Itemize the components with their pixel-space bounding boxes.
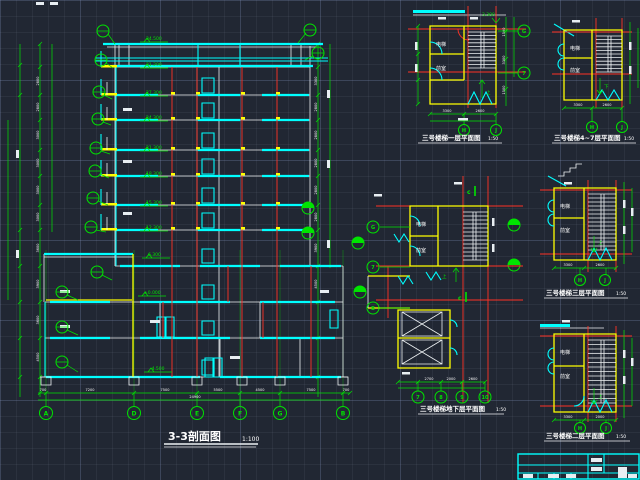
axis-bubble-label: 9 [460, 395, 464, 401]
plan-basement: 电梯 前室 上 c c G 7 B 2700 2000 2600 7 8 9 1… [367, 176, 523, 414]
plan-upper-floors: 下 电梯 前室 3300 2600 H J 三号楼梯4~7层平面图 1:50 [552, 18, 638, 143]
dim-label: 700 [343, 388, 350, 392]
plan-scale: 1:50 [616, 291, 626, 297]
section-bottom-dims: 700 7200 7500 5500 4500 7500 700 24900 A… [38, 388, 352, 420]
section-scale-text: 1:100 [242, 436, 259, 443]
room-label: 电梯 [570, 45, 580, 52]
axis-bubble-label: J [494, 128, 497, 134]
axis-bubble-label: H [578, 278, 582, 284]
room-label: 电梯 [436, 41, 446, 48]
dim-label: 3300 [443, 109, 452, 113]
dim-label: 3300 [314, 77, 318, 86]
dim-label: 2000 [596, 415, 605, 419]
room-label: 前室 [560, 227, 570, 234]
dim-label: 3900 [36, 280, 40, 289]
room-label: 前室 [416, 247, 426, 254]
axis-bubble-label: G [278, 411, 283, 418]
section-title: 3-3剖面图 1:100 [164, 429, 259, 447]
plan-title: 三号楼梯一层平面图 [422, 133, 481, 142]
room-label: 前室 [570, 67, 580, 74]
level-label: 24.300 [146, 115, 162, 121]
plan-second-floor: 上 电梯 前室 3300 2000 H J 三号楼梯二层平面图 1:50 [540, 320, 634, 441]
dim-label: 2800 [314, 186, 318, 195]
axis-bubble-label: A [44, 411, 49, 418]
plan-scale: 1:50 [488, 136, 498, 142]
title-block [518, 454, 639, 479]
section-title-text: 3-3剖面图 [168, 429, 221, 443]
axis-bubble-label: E [195, 411, 199, 418]
dim-label: 7500 [307, 388, 316, 392]
stair-direction-label: 上 [442, 273, 447, 280]
level-label: 12.300 [146, 225, 162, 231]
dim-label: 3300 [502, 56, 506, 65]
section-mark-label: c [458, 295, 462, 302]
room-label: 电梯 [416, 221, 426, 228]
dim-label: 7200 [86, 388, 95, 392]
dim-label: 4500 [256, 388, 265, 392]
axis-bubble-label: 8 [439, 395, 443, 401]
axis-bubble-label: 7 [371, 265, 375, 271]
dim-label: 2800 [36, 77, 40, 86]
level-label: 6.300 [148, 252, 161, 258]
dim-label: 5500 [214, 388, 223, 392]
plan-third-floor: 上 电梯 前室 3300 2600 H J 三号楼梯三层平面图 1:50 [540, 164, 634, 298]
dim-label: 2800 [314, 213, 318, 222]
dim-total-label: 24900 [189, 395, 200, 399]
axis-bubble-label: B [371, 306, 375, 312]
room-label: 电梯 [560, 203, 570, 210]
dim-label: 3300 [564, 263, 573, 267]
dim-label: 7500 [161, 388, 170, 392]
dim-label: 2000 [447, 377, 456, 381]
detail-index-marker [56, 24, 324, 372]
plan-title: 三号楼梯二层平面图 [546, 431, 605, 440]
dim-label: 2700 [425, 377, 434, 381]
level-label: 18.300 [146, 171, 162, 177]
dim-label: 3300 [574, 103, 583, 107]
dim-label: 2800 [314, 159, 318, 168]
axis-bubble-label: J [604, 426, 607, 432]
axis-bubble-label: 7 [416, 395, 420, 401]
axis-bubble-label: D [132, 411, 137, 418]
dim-label: 1500 [502, 28, 506, 37]
section-mark-label: c [467, 189, 471, 196]
axis-bubbles: A D E F G B [40, 407, 350, 420]
axis-bubble-label: J [603, 278, 606, 284]
level-label: 21.300 [146, 145, 162, 151]
section-right-dim-chains: 3300 2800 2800 2800 2800 2800 3900 4500 [314, 42, 330, 397]
dim-label: 700 [40, 388, 47, 392]
axis-bubble-label: F [238, 411, 242, 418]
plan-scale: 1:50 [624, 136, 634, 142]
dim-label: 4500 [36, 353, 40, 362]
dim-label: 4500 [314, 280, 318, 289]
plan-title: 三号楼梯4~7层平面图 [554, 133, 621, 142]
room-label: 电梯 [560, 349, 570, 356]
axis-bubble-label: G [371, 225, 375, 231]
level-label: ±0.000 [144, 290, 161, 296]
axis-bubble-label: J [620, 125, 623, 131]
dim-label: 3300 [564, 415, 573, 419]
dim-label: 2600 [476, 109, 485, 113]
axis-bubble-label: H [590, 125, 594, 131]
dim-label: 3000 [36, 186, 40, 195]
plan-title: 三号楼梯三层平面图 [546, 288, 605, 297]
dim-label: 3600 [36, 316, 40, 325]
level-label: 27.300 [146, 90, 162, 96]
section-structure [40, 44, 348, 393]
dim-label: 3900 [314, 244, 318, 253]
axis-bubble-label: 7 [522, 71, 526, 77]
dim-label: 3000 [36, 213, 40, 222]
plan-first-floor: 上 3.300 电梯 前室 3300 2600 H J 1500 3300 15… [408, 6, 530, 143]
level-label: 15.300 [146, 200, 162, 206]
stair-direction-label: 上 [598, 393, 603, 400]
dim-label: 2600 [603, 103, 612, 107]
dim-label: 3000 [36, 131, 40, 140]
axis-bubble-label: 10 [482, 395, 489, 401]
dim-label: 2800 [314, 103, 318, 112]
level-label: 31.200 [146, 62, 162, 68]
dim-label: 3600 [36, 244, 40, 253]
dim-label: 1500 [502, 86, 506, 95]
plan-scale: 1:50 [496, 407, 506, 413]
axis-bubble-label: B [341, 411, 346, 418]
dim-label: 2600 [469, 377, 478, 381]
plan-title: 三号楼梯地下层平面图 [420, 404, 486, 413]
level-label: 3.300 [482, 12, 495, 18]
stair-direction-label: 下 [604, 84, 609, 90]
dim-label: 2600 [596, 263, 605, 267]
level-label: -4.500 [150, 366, 165, 372]
stair-direction-label: 上 [486, 89, 491, 96]
cad-drawing-canvas[interactable]: 2800 2800 3000 3000 3000 3000 3600 3900 … [0, 0, 640, 480]
dim-label: 2800 [36, 103, 40, 112]
elevator-shafts [398, 310, 457, 368]
level-label: 34.500 [146, 36, 162, 42]
dim-label: 2800 [314, 131, 318, 140]
room-label: 前室 [436, 65, 446, 72]
plan-scale: 1:50 [616, 434, 626, 440]
stair-direction-label: 上 [598, 239, 603, 246]
room-label: 前室 [560, 373, 570, 380]
dim-label: 3000 [36, 159, 40, 168]
axis-bubble-label: G [522, 29, 526, 35]
